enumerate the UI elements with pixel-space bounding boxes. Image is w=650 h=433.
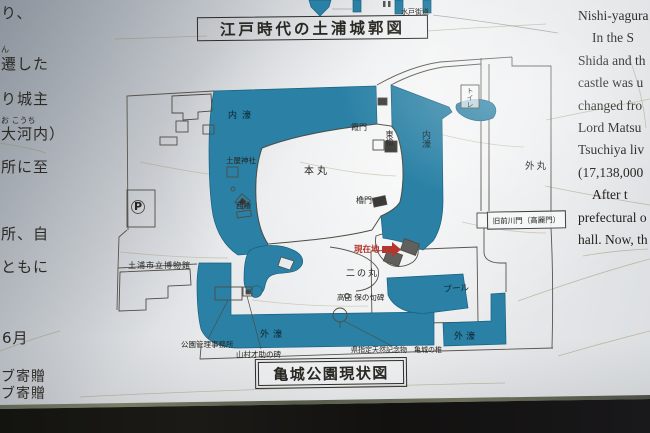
en-text-line: Shida and th (578, 50, 650, 72)
en-text-line: In the S (578, 27, 650, 49)
en-text-line: Lord Matsu (578, 117, 650, 139)
photo-of-park-sign: り、 ん 遷した り城主 お こうち 大河内） 所に至 所、自 ともに 6月 ブ… (0, 0, 650, 433)
en-text-line: After t (578, 184, 650, 206)
yagura-gate-label: 櫓門 (356, 195, 372, 206)
jp-text-line: ともに (1, 256, 49, 277)
jp-text-line: 大河内） (1, 123, 65, 144)
jp-text-line: り城主 (1, 88, 49, 109)
ninomaru-label: 二の丸 (346, 266, 379, 279)
edo-moat-bar (353, 0, 361, 12)
higashi-yagura-building (373, 140, 384, 150)
northwest-buildings (172, 94, 212, 120)
jp-text-line: り、 (1, 2, 32, 23)
park-office-label: 公園管理事務所 (181, 339, 234, 350)
jp-text-line: 遷した (1, 53, 49, 74)
en-text-line: Tsuchiya liv (578, 139, 650, 161)
en-text-line: changed fro (578, 95, 650, 117)
tsuchiya-shrine-label: 土屋神社 (226, 155, 256, 166)
pool-label: プール (443, 281, 469, 295)
outer-moat-label: 外濠 (260, 327, 286, 340)
higashi-yagura-label: 東櫓 (384, 130, 395, 146)
jp-text-line: 所に至 (1, 156, 49, 177)
natural-monument-label: 県指定天然記念物 亀城の椎 (351, 345, 442, 355)
honmaru-island (256, 124, 403, 244)
en-text-line: prefectural o (578, 207, 650, 229)
jp-text-line: ブ寄贈 (1, 383, 46, 403)
en-text-line: hall. Now, th (578, 229, 650, 251)
takada-haiku-monument-label: 高田 保の句碑 (337, 292, 384, 303)
inner-moat-label: 内濠 (228, 108, 256, 121)
edo-map-title: 江戸時代の土浦城郭図 (197, 15, 428, 41)
en-text-line: (17,138,000 (578, 162, 650, 184)
english-text-column: Nishi-yagura In the S Shida and th castl… (578, 5, 650, 251)
nishi-yagura-label: 西櫓 (236, 200, 251, 211)
museum-building (119, 269, 191, 311)
parking-label: P (134, 200, 142, 213)
kasumi-gate-label: 霞門 (351, 122, 367, 133)
yagura-gate-marker (372, 196, 387, 208)
honmaru-label: 本丸 (304, 162, 330, 177)
inner-moat-east (381, 85, 452, 250)
old-maekawa-gate-label: 旧前川門（高麗門） (487, 210, 566, 229)
museum-label: 土浦市立博物館 (128, 260, 191, 271)
edo-tick (388, 1, 391, 7)
jp-text-line: 所、自 (1, 223, 49, 244)
en-text-line: Nishi-yagura (578, 5, 650, 27)
toilet-label: トイレ (465, 87, 475, 108)
edo-tick (383, 1, 386, 7)
inner-moat-label: 内濠 (419, 130, 432, 148)
current-map-title: 亀城公園現状図 (258, 360, 404, 386)
en-text-line: castle was u (578, 72, 650, 94)
outer-moat-label: 外濠 (454, 329, 478, 342)
current-location-label: 現在地 (354, 243, 380, 255)
yamamura-monument-label: 山村才助の碑 (236, 349, 281, 360)
sotomaru-label: 外丸 (525, 158, 548, 172)
edo-moat-drop (309, 0, 331, 16)
jp-text-line: 6月 (2, 327, 29, 348)
kasumi-gate-marker (378, 98, 387, 105)
